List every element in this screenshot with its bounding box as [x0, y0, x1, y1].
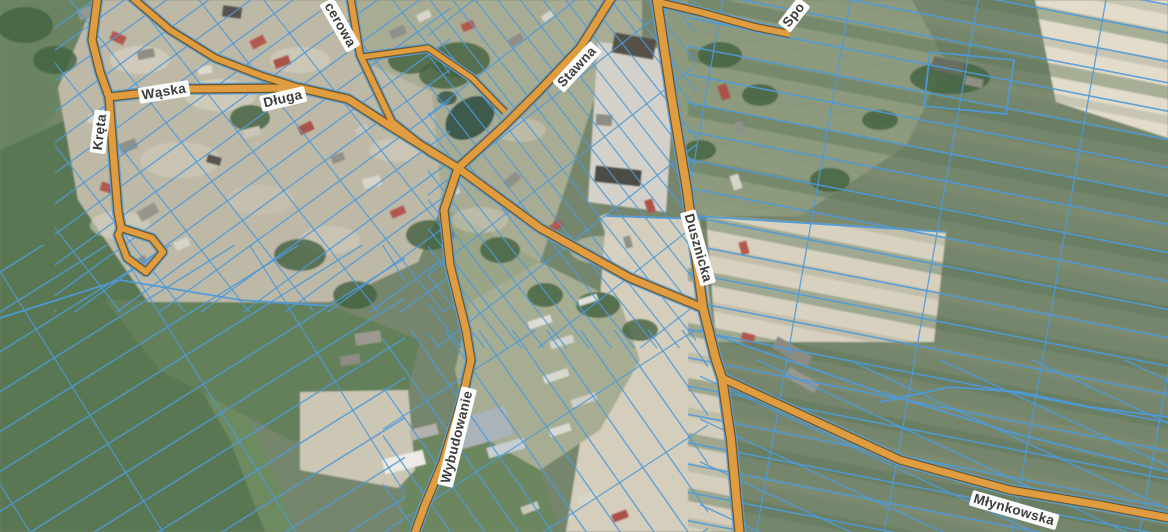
- tree-clump: [862, 110, 898, 130]
- tree-clump: [480, 237, 520, 263]
- tree-clump: [333, 281, 377, 309]
- map-render-surface: [0, 0, 1168, 532]
- tree-clump: [742, 84, 778, 106]
- tree-clump: [230, 105, 270, 131]
- tree-clump: [527, 283, 563, 307]
- tree-clump: [810, 168, 850, 192]
- map-canvas[interactable]: KrętaWąskaDługacerowaStawnaSpoDusznickaW…: [0, 0, 1168, 532]
- terrain-layer: [0, 0, 1168, 532]
- building: [596, 114, 613, 126]
